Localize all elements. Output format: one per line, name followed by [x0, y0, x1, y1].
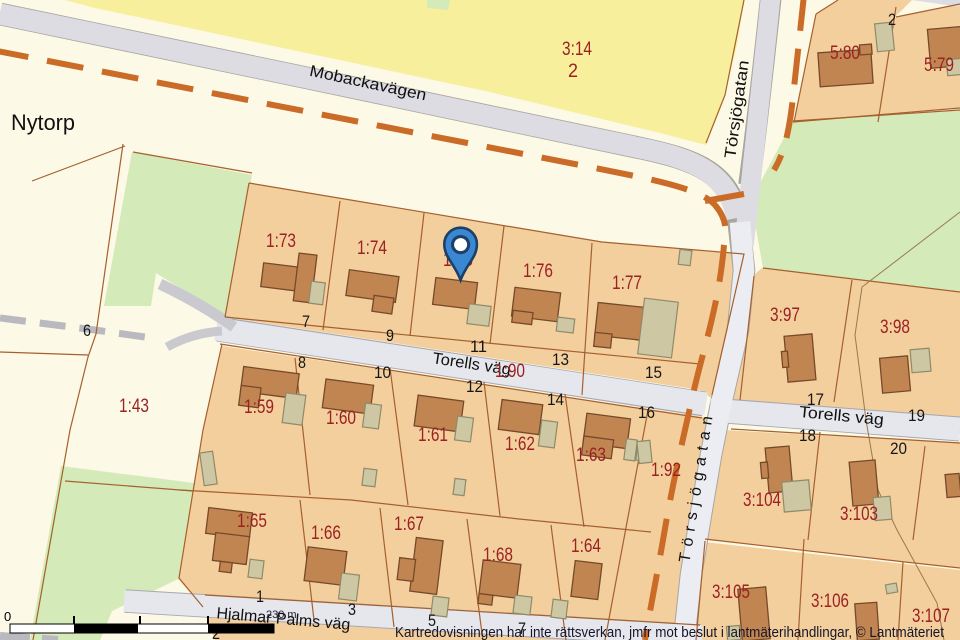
- svg-text:7: 7: [302, 313, 310, 331]
- svg-text:1:60: 1:60: [326, 407, 356, 429]
- svg-text:1:63: 1:63: [576, 444, 606, 466]
- svg-text:1:77: 1:77: [612, 272, 642, 294]
- svg-text:3:97: 3:97: [770, 304, 800, 326]
- svg-text:1:73: 1:73: [266, 230, 296, 252]
- svg-text:2: 2: [568, 60, 578, 82]
- svg-text:2: 2: [888, 11, 896, 29]
- svg-text:1:67: 1:67: [394, 513, 424, 535]
- svg-text:20: 20: [890, 440, 907, 458]
- svg-text:1:62: 1:62: [505, 433, 535, 455]
- svg-text:1:61: 1:61: [418, 424, 448, 446]
- svg-text:1:68: 1:68: [483, 544, 513, 566]
- svg-text:19: 19: [908, 407, 925, 425]
- svg-text:3:104: 3:104: [743, 489, 781, 511]
- svg-text:18: 18: [799, 427, 816, 445]
- svg-text:1:59: 1:59: [244, 396, 274, 418]
- svg-text:8: 8: [298, 354, 306, 372]
- svg-text:5:79: 5:79: [924, 54, 954, 76]
- svg-text:1:76: 1:76: [523, 260, 553, 282]
- svg-text:12: 12: [466, 378, 483, 396]
- svg-text:17: 17: [807, 391, 824, 409]
- svg-text:11: 11: [470, 338, 487, 356]
- svg-text:230 m: 230 m: [266, 609, 297, 621]
- svg-text:9: 9: [386, 327, 394, 345]
- svg-text:0: 0: [4, 609, 11, 624]
- svg-text:6: 6: [83, 322, 91, 340]
- svg-text:3: 3: [348, 601, 356, 619]
- svg-text:3:14: 3:14: [562, 38, 592, 60]
- svg-text:Nytorp: Nytorp: [11, 110, 75, 135]
- svg-text:1:74: 1:74: [357, 237, 387, 259]
- svg-text:5:80: 5:80: [830, 42, 860, 64]
- svg-text:16: 16: [638, 404, 655, 422]
- svg-text:1:92: 1:92: [651, 459, 681, 481]
- svg-text:3:106: 3:106: [811, 590, 849, 612]
- svg-text:14: 14: [547, 391, 564, 409]
- svg-text:3:107: 3:107: [912, 605, 950, 627]
- svg-text:1:66: 1:66: [311, 522, 341, 544]
- svg-text:3:98: 3:98: [880, 316, 910, 338]
- svg-text:1:43: 1:43: [119, 395, 149, 417]
- svg-text:1: 1: [256, 588, 264, 606]
- svg-text:3:103: 3:103: [840, 503, 878, 525]
- svg-text:1:64: 1:64: [571, 535, 601, 557]
- svg-text:Kartredovisningen har inte rät: Kartredovisningen har inte rättsverkan, …: [395, 625, 944, 640]
- svg-text:1:90: 1:90: [495, 360, 525, 382]
- svg-text:1:65: 1:65: [237, 510, 267, 532]
- svg-text:3:105: 3:105: [712, 581, 750, 603]
- svg-text:10: 10: [374, 364, 391, 382]
- svg-text:15: 15: [645, 364, 662, 382]
- svg-text:13: 13: [552, 351, 569, 369]
